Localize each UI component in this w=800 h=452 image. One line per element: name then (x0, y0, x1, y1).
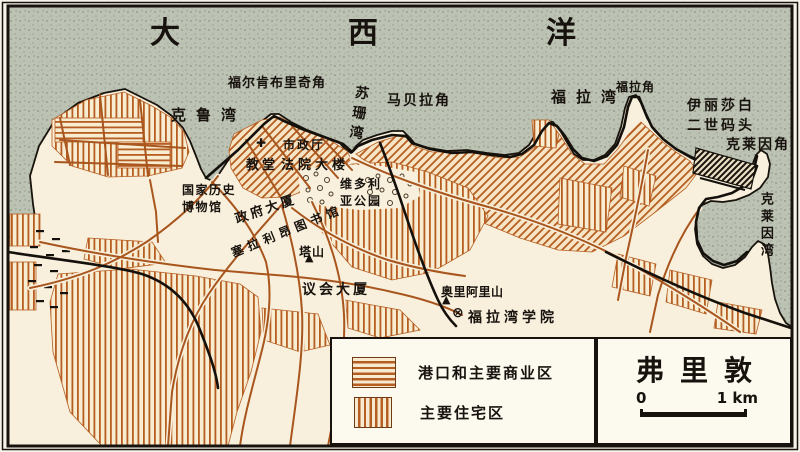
freetown-map-figure: 大西洋福尔肯布里奇角克鲁湾苏珊湾马贝拉角福拉角福拉湾伊丽莎白 二世码头克莱因角克… (0, 0, 800, 452)
commercial-hatch-swatch (352, 357, 396, 388)
scale-bar-line (640, 409, 747, 417)
legend-item-commercial: 港口和主要商业区 (352, 357, 554, 388)
legend-box: 港口和主要商业区 主要住宅区 (330, 337, 596, 445)
legend-item-residential: 主要住宅区 (354, 397, 505, 428)
scale-start-label: 0 (636, 389, 646, 407)
legend-label-residential: 主要住宅区 (420, 402, 505, 423)
title-box: 弗里敦 0 1 km (596, 337, 792, 445)
scale-end-label: 1 km (717, 389, 758, 407)
legend-label-commercial: 港口和主要商业区 (418, 362, 554, 383)
scale-bar: 0 1 km (636, 389, 758, 417)
residential-hatch-swatch (354, 397, 392, 428)
map-title: 弗里敦 (598, 349, 790, 389)
